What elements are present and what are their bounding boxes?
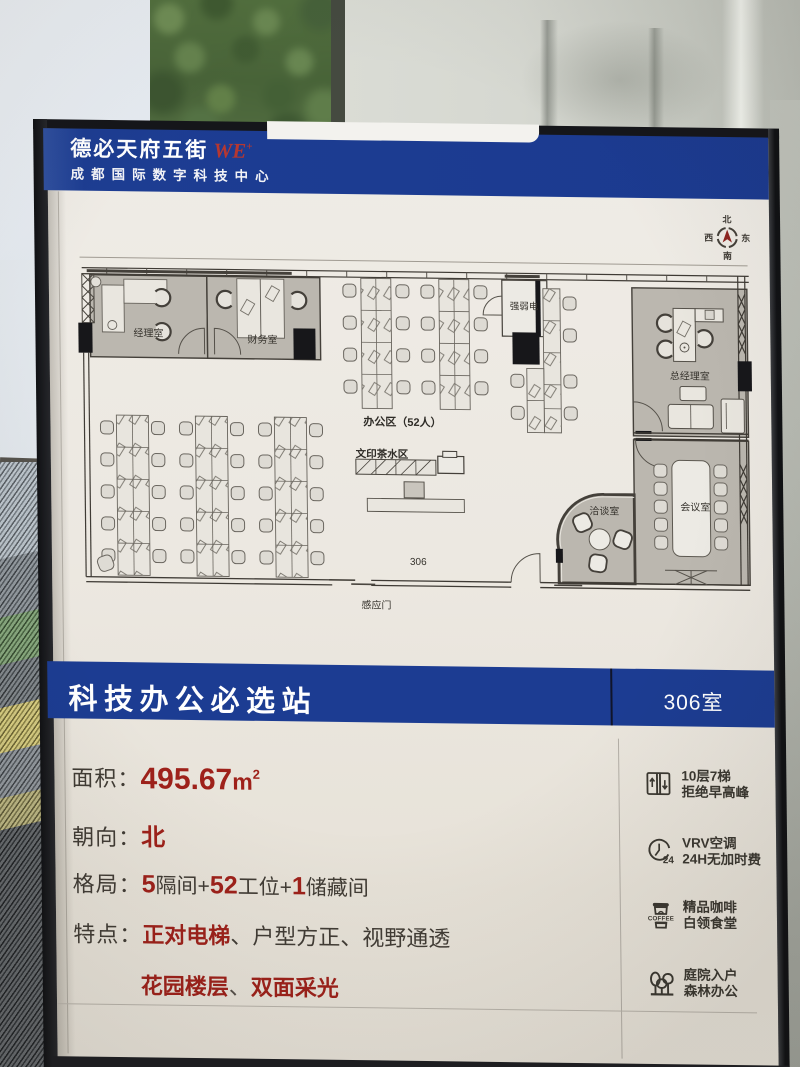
- svg-text:西: 西: [704, 233, 713, 243]
- svg-text:洽谈室: 洽谈室: [589, 504, 619, 517]
- svg-text:北: 北: [722, 214, 731, 225]
- svg-text:强弱电: 强弱电: [510, 300, 539, 312]
- svg-text:财务室: 财务室: [247, 333, 277, 346]
- svg-text:会议室: 会议室: [680, 500, 710, 513]
- svg-text:办公区（52人）: 办公区（52人）: [363, 414, 441, 429]
- svg-text:306: 306: [410, 557, 427, 568]
- svg-text:感应门: 感应门: [361, 598, 391, 611]
- svg-text:文印茶水区: 文印茶水区: [355, 447, 409, 461]
- svg-text:COFFEE: COFFEE: [648, 915, 674, 922]
- svg-text:东: 东: [741, 232, 750, 243]
- svg-text:总经理室: 总经理室: [670, 369, 710, 383]
- svg-text:24: 24: [663, 855, 675, 866]
- svg-text:经理室: 经理室: [133, 326, 163, 339]
